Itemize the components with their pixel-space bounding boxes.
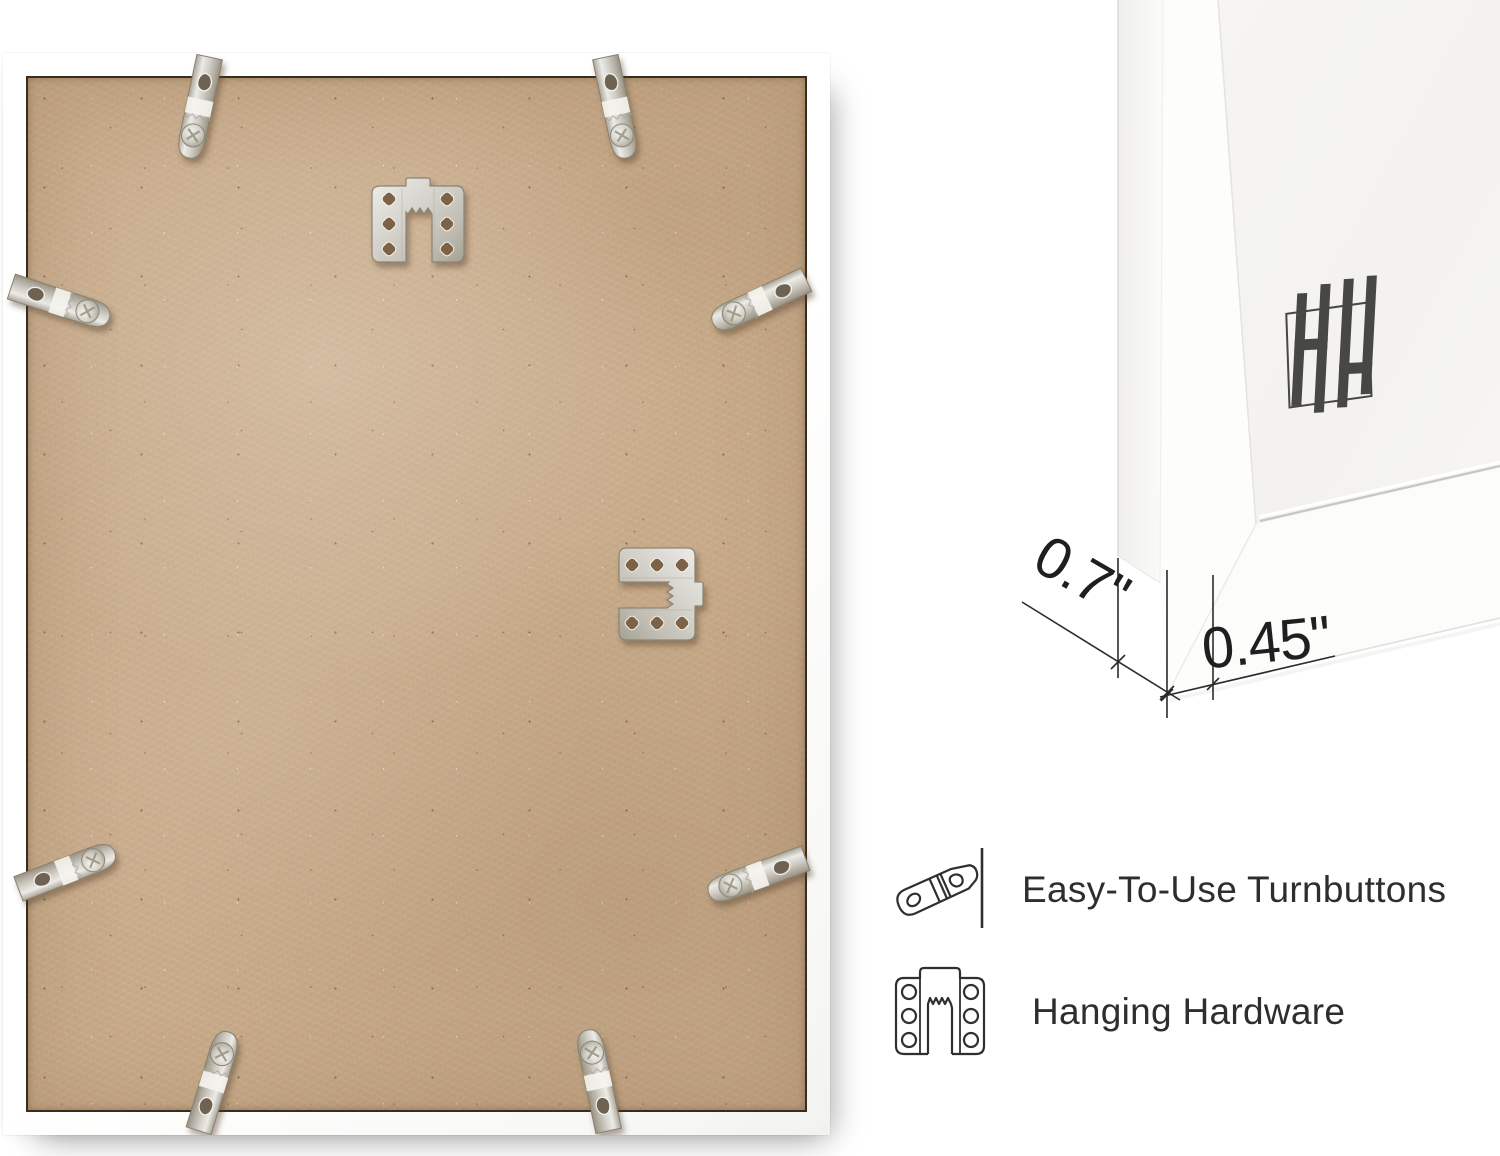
turnbutton <box>14 839 120 901</box>
turnbutton <box>574 1027 622 1133</box>
turnbutton <box>7 273 113 331</box>
sawtooth-hanger <box>372 178 464 262</box>
feature-hanging-hardware: Hanging Hardware <box>890 964 1345 1060</box>
turnbutton <box>176 54 224 160</box>
turnbutton <box>593 54 641 160</box>
hanging-hardware-icon <box>890 964 990 1060</box>
feature-label-hanging-hardware: Hanging Hardware <box>1032 991 1345 1033</box>
product-infographic: 0.7" 0.45" Easy-To-Use Turnbuttons <box>0 0 1500 1156</box>
frame-back-photo <box>3 53 830 1135</box>
hardware-overlay <box>3 53 830 1135</box>
dimension-label-depth: 0.45" <box>1199 604 1334 682</box>
turnbutton <box>707 268 812 336</box>
sawtooth-hanger <box>619 548 703 640</box>
feature-turnbuttons: Easy-To-Use Turnbuttons <box>888 840 1446 940</box>
turnbutton <box>185 1028 241 1134</box>
frame-corner-photo: 0.7" 0.45" <box>840 0 1500 760</box>
turnbutton <box>704 846 810 907</box>
turnbutton-icon <box>888 840 988 940</box>
corner-frame-render <box>1118 0 1500 700</box>
feature-label-turnbuttons: Easy-To-Use Turnbuttons <box>1022 869 1446 911</box>
